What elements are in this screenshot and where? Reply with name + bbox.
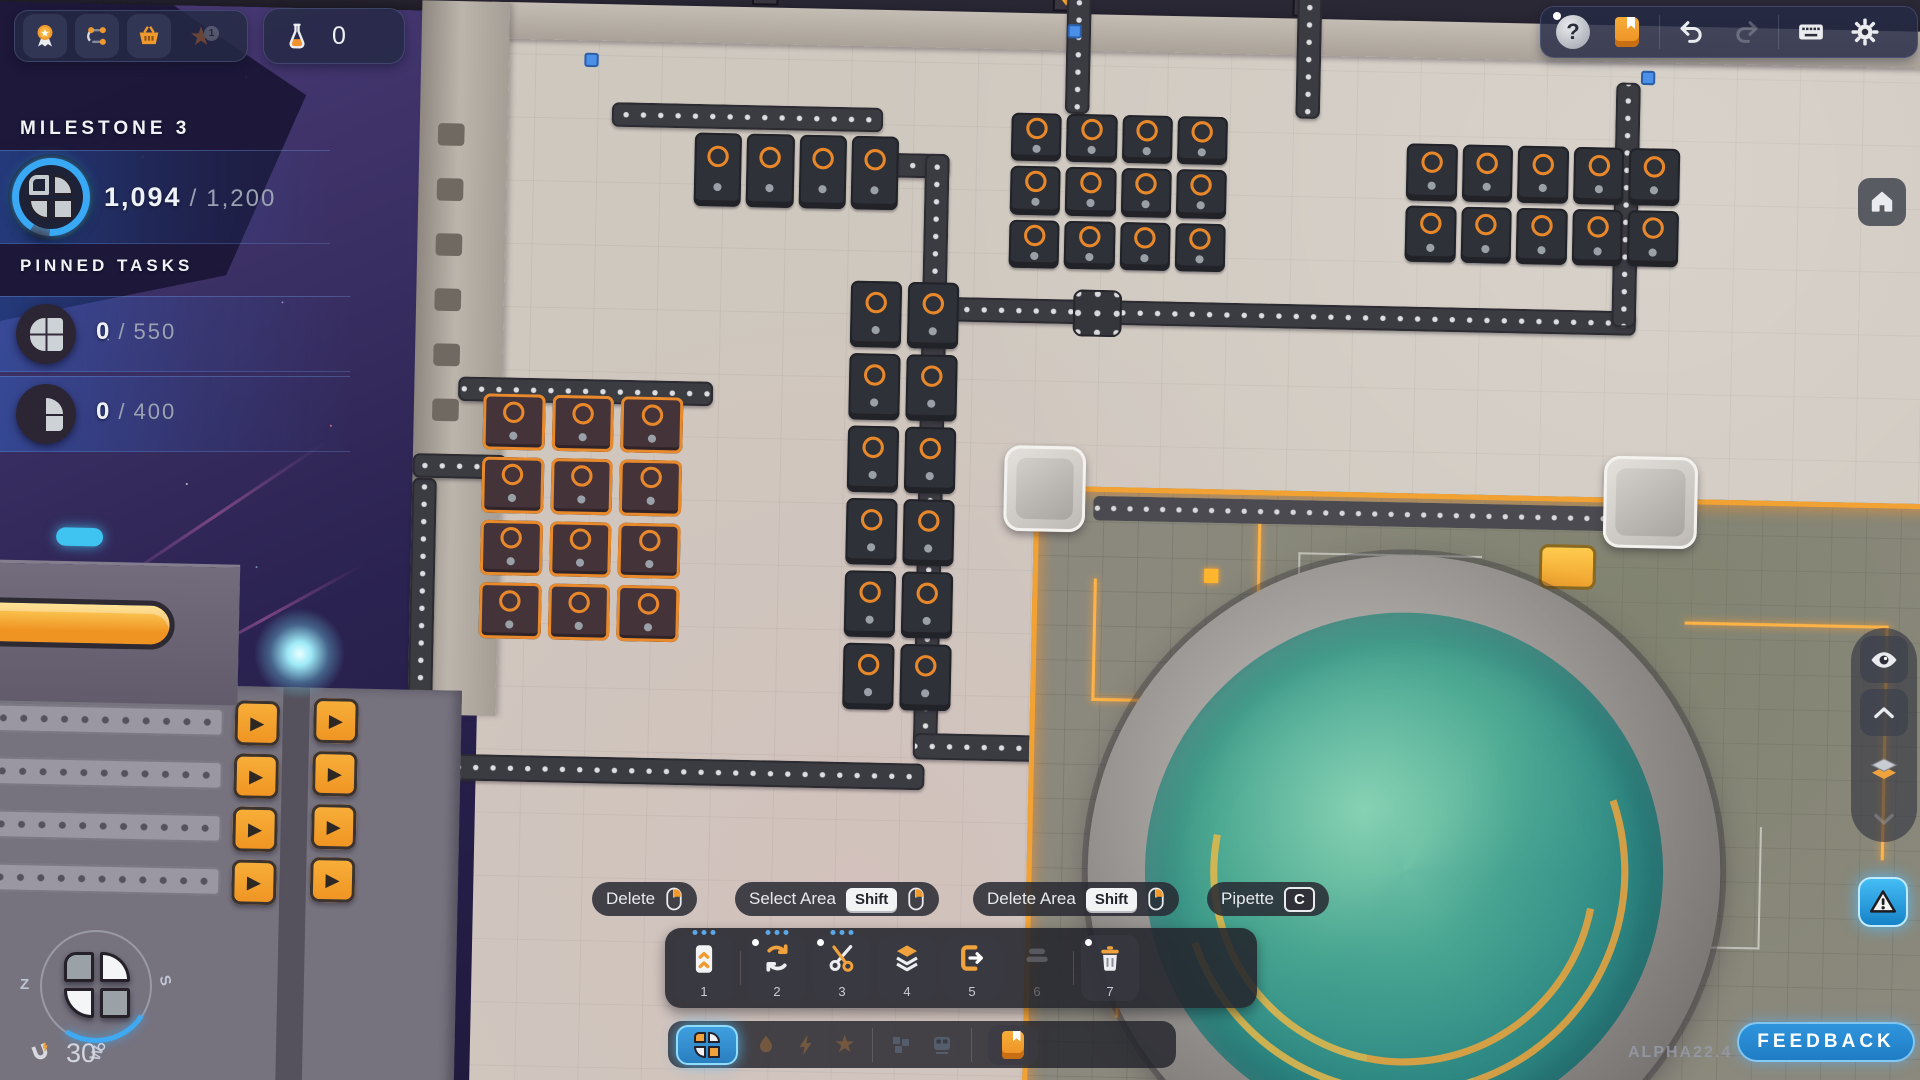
tool-delete[interactable]: 7 (1081, 935, 1139, 1001)
pinned-tasks-heading: PINNED TASKS (20, 256, 193, 276)
compass[interactable]: Z S W (40, 930, 152, 1042)
lightning-icon (794, 1033, 818, 1057)
research-counter[interactable]: 0 (263, 8, 405, 64)
warning-icon (1868, 887, 1898, 917)
task1-sep: / (118, 319, 126, 345)
hint-label: Delete (606, 889, 655, 909)
milestone-number: 3 (176, 118, 191, 139)
chevron-down-icon (1870, 805, 1898, 833)
droplet-icon (754, 1033, 778, 1057)
game-viewport: ▶ ▶ ▶ ▶ ▶ ▶ ▶ ▶ ★ (0, 0, 1920, 1080)
energy-category-button[interactable] (794, 1033, 818, 1057)
goals-category-button[interactable]: ★ (834, 1030, 856, 1059)
alerts-button[interactable] (1858, 877, 1908, 927)
task-shape-icon[interactable] (16, 384, 76, 444)
c-keycap: C (1284, 887, 1315, 912)
settings-button[interactable] (1843, 10, 1887, 54)
shortcuts-button[interactable] (1789, 10, 1833, 54)
fluids-category-button[interactable] (754, 1033, 778, 1057)
tool-hotkey: 6 (1033, 984, 1040, 999)
milestone-heading: MILESTONE 3 (20, 118, 190, 140)
milestone-current: 1,094 (104, 182, 182, 213)
task1-shape (30, 318, 63, 351)
hint-label: Pipette (1221, 889, 1274, 909)
tool-paste[interactable]: 5 (943, 935, 1001, 1001)
tool-hotkey: 2 (773, 984, 780, 999)
hint-label: Select Area (749, 889, 836, 909)
top-left-toolbar: ★ ★ 1 (14, 10, 248, 62)
bar-divider (971, 1028, 972, 1062)
task2-shape-bottom (46, 416, 63, 431)
rotation-angle: 30° (66, 1038, 107, 1069)
layers-tool-icon (891, 942, 923, 974)
tool-layers[interactable]: 4 (878, 935, 936, 1001)
help-button[interactable]: ? (1551, 10, 1595, 54)
milestone-sep: / (190, 185, 199, 213)
train-icon (929, 1033, 955, 1057)
magnet-icon (24, 1037, 57, 1070)
scissors-icon (826, 942, 858, 974)
gear-icon (1850, 17, 1880, 47)
notification-dot (817, 939, 824, 946)
pin-dots (766, 930, 789, 935)
keyboard-icon (1796, 17, 1826, 47)
compass-s: S (155, 973, 174, 987)
task2-progress: 0 / 400 (96, 398, 176, 426)
tool-hotkey: 7 (1106, 984, 1113, 999)
notification-dot (1085, 939, 1092, 946)
task1-progress: 0 / 550 (96, 318, 176, 346)
flask-icon (282, 21, 312, 51)
category-bar: ★ (668, 1021, 1176, 1068)
basket-icon (135, 22, 163, 50)
tool-rotate[interactable]: 2 (748, 935, 806, 1001)
tool-locked: 6 (1008, 935, 1066, 1001)
redo-button[interactable] (1724, 10, 1768, 54)
toolbar-divider (1659, 15, 1660, 49)
shop-button[interactable] (127, 14, 171, 58)
eye-icon (1869, 645, 1899, 675)
belt-tool-icon (689, 942, 719, 976)
feedback-button[interactable]: FEEDBACK (1737, 1022, 1915, 1062)
question-icon: ? (1556, 15, 1590, 49)
undo-button[interactable] (1670, 10, 1714, 54)
layer-down-button[interactable] (1860, 795, 1908, 842)
research-tree-button[interactable] (75, 14, 119, 58)
milestone-shape-icon (29, 175, 73, 219)
mouse-right-click-icon (665, 886, 683, 912)
shapes-category-button[interactable] (676, 1025, 738, 1065)
node-graph-icon (83, 22, 111, 50)
hint-delete-area: Delete Area Shift (973, 882, 1179, 916)
pin-dots (831, 930, 854, 935)
notification-dot (752, 939, 759, 946)
compass-shape (64, 952, 130, 1018)
tool-cut[interactable]: 3 (813, 935, 871, 1001)
trash-icon (1095, 942, 1125, 974)
paste-icon (956, 942, 988, 974)
task1-goal: 550 (133, 319, 176, 345)
locked-tool-icon (1021, 942, 1053, 974)
task2-goal: 400 (133, 399, 176, 425)
tool-hotkey: 3 (838, 984, 845, 999)
tool-palette: 1 2 (665, 928, 1257, 1008)
toolbar-divider (1778, 15, 1779, 49)
star-badge-count: 1 (204, 26, 219, 41)
top-right-toolbar: ? (1540, 6, 1918, 58)
milestone-heading-text: MILESTONE (20, 118, 167, 139)
tool-hotkey: 5 (968, 984, 975, 999)
hint-pipette: Pipette C (1207, 882, 1329, 916)
hint-select-area: Select Area Shift (735, 882, 939, 916)
book-icon (1002, 1031, 1024, 1059)
home-button[interactable] (1858, 178, 1906, 226)
platforms-category-button[interactable] (889, 1033, 913, 1057)
layer-up-button[interactable] (1860, 689, 1908, 736)
mouse-right-click-icon (1147, 886, 1165, 912)
home-icon (1868, 188, 1896, 216)
star-icon: ★ (834, 1030, 856, 1059)
compass-z: Z (20, 976, 29, 993)
platform-tiles-icon (889, 1033, 913, 1057)
layers-icon (1867, 749, 1901, 783)
tool-belts[interactable]: 1 (675, 935, 733, 1001)
hint-label: Delete Area (987, 889, 1076, 909)
medal-icon: ★ (31, 22, 59, 50)
knowledge-book-button[interactable] (1605, 10, 1649, 54)
undo-icon (1678, 18, 1706, 46)
hud-overlay: ★ ★ 1 (0, 0, 1920, 1080)
shift-keycap: Shift (846, 888, 897, 911)
bar-divider (872, 1028, 873, 1062)
rotate-icon (761, 942, 793, 974)
milestones-button[interactable]: ★ (23, 14, 67, 58)
trains-category-button[interactable] (929, 1033, 955, 1057)
current-layer-button[interactable] (1860, 742, 1908, 789)
shift-keycap: Shift (1086, 888, 1137, 911)
pin-dots (693, 930, 716, 935)
svg-text:★: ★ (40, 27, 49, 39)
redo-icon (1732, 18, 1760, 46)
shapes-icon (694, 1032, 720, 1058)
milestone-progress: 1,094 / 1,200 (104, 182, 276, 213)
knowledge-panel-button[interactable] (988, 1025, 1038, 1065)
book-icon (1615, 17, 1639, 47)
chevron-up-icon (1870, 699, 1898, 727)
tool-hotkey: 4 (903, 984, 910, 999)
palette-divider (1073, 951, 1074, 985)
task2-current: 0 (96, 398, 111, 426)
rotation-indicator: 30° (28, 1038, 107, 1069)
research-count: 0 (332, 22, 346, 51)
hint-delete: Delete (592, 882, 697, 916)
layer-controls (1851, 628, 1917, 842)
milestone-goal: 1,200 (206, 185, 276, 213)
version-label: ALPHA22.4 (1628, 1044, 1732, 1062)
tool-hotkey: 1 (700, 984, 707, 999)
star-tasks-button[interactable]: ★ 1 (179, 14, 223, 58)
palette-divider (740, 951, 741, 985)
notification-dot (1553, 12, 1561, 20)
mouse-right-click-icon (907, 886, 925, 912)
task2-sep: / (118, 399, 126, 425)
visibility-button[interactable] (1860, 636, 1908, 683)
task1-current: 0 (96, 318, 111, 346)
